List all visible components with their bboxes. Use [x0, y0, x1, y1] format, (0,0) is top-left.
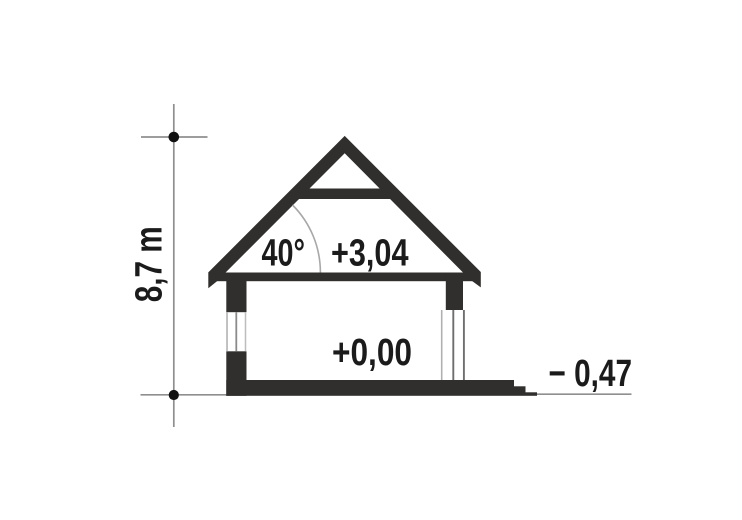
svg-text:+3,04: +3,04: [331, 233, 409, 275]
svg-text:− 0,47: − 0,47: [549, 353, 633, 395]
svg-text:+0,00: +0,00: [332, 332, 412, 374]
svg-text:40°: 40°: [262, 233, 306, 275]
svg-text:8,7 m: 8,7 m: [129, 226, 171, 302]
